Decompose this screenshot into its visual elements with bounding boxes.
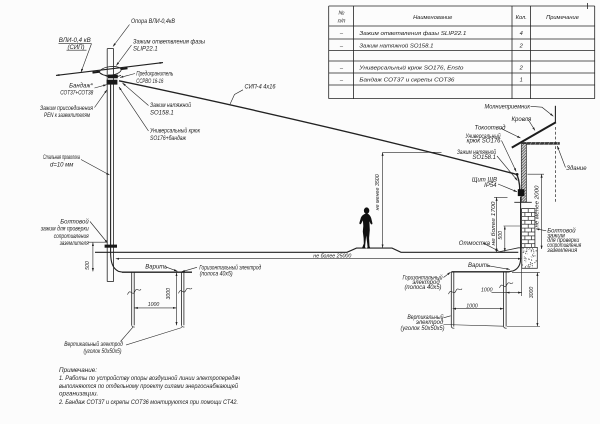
svg-text:(уголок 50х50х5): (уголок 50х50х5) xyxy=(401,326,445,332)
svg-text:–: – xyxy=(339,78,344,84)
svg-text:Зажим присоединения: Зажим присоединения xyxy=(40,106,94,112)
svg-text:СИП-4 4х16: СИП-4 4х16 xyxy=(245,85,277,91)
svg-text:IP54: IP54 xyxy=(484,183,497,189)
svg-text:Наименование: Наименование xyxy=(413,15,452,21)
svg-text:–: – xyxy=(339,66,344,72)
svg-text:Универсальный крюк: Универсальный крюк xyxy=(149,128,201,135)
svg-text:Зажим натяжной SO158.1: Зажим натяжной SO158.1 xyxy=(359,43,433,50)
svg-text:(полоса 40х5): (полоса 40х5) xyxy=(200,272,233,278)
svg-text:Зажим натяжной: Зажим натяжной xyxy=(150,102,192,109)
svg-text:электрод: электрод xyxy=(416,320,444,326)
svg-text:не менее 3500: не менее 3500 xyxy=(375,174,381,210)
svg-text:d=10 мм: d=10 мм xyxy=(50,162,73,168)
svg-text:крюк SO176: крюк SO176 xyxy=(467,139,502,145)
svg-text:ВЛИ-0,4 кВ: ВЛИ-0,4 кВ xyxy=(59,38,91,44)
svg-text:сопротивления: сопротивления xyxy=(54,234,90,240)
svg-text:Стальная проволока: Стальная проволока xyxy=(43,155,80,161)
svg-text:SLIP22.1: SLIP22.1 xyxy=(133,47,158,53)
svg-text:заземлителя: заземлителя xyxy=(59,241,89,247)
svg-text:зажим для проверки: зажим для проверки xyxy=(40,227,89,233)
svg-text:Примечание: Примечание xyxy=(546,15,579,21)
svg-text:SO158.1: SO158.1 xyxy=(472,155,496,161)
svg-text:Здание: Здание xyxy=(566,166,587,172)
svg-text:Кол.: Кол. xyxy=(516,15,527,21)
svg-text:1000: 1000 xyxy=(466,303,478,309)
svg-text:3000: 3000 xyxy=(166,288,172,300)
svg-text:Варить: Варить xyxy=(468,263,490,269)
svg-text:(уголок 50х50х5): (уголок 50х50х5) xyxy=(84,349,122,355)
svg-text:1000: 1000 xyxy=(148,302,160,308)
svg-text:не менее 2000: не менее 2000 xyxy=(535,185,541,227)
svg-text:–: – xyxy=(339,44,344,50)
svg-text:1000: 1000 xyxy=(481,288,493,294)
svg-text:Варить: Варить xyxy=(145,265,167,271)
svg-text:№: № xyxy=(338,11,344,17)
svg-text:Бандаж СОТ37 и скрепы СОТ36: Бандаж СОТ37 и скрепы СОТ36 xyxy=(359,78,455,84)
svg-text:не более 1700: не более 1700 xyxy=(491,201,497,245)
svg-text:Зажим ответвления фазы SLIP22.: Зажим ответвления фазы SLIP22.1 xyxy=(359,31,466,37)
svg-text:(полоса 40х5): (полоса 40х5) xyxy=(405,285,442,291)
svg-text:СОТ37+СОТ38: СОТ37+СОТ38 xyxy=(60,91,94,97)
svg-text:Универсальный крюк SO176, Enst: Универсальный крюк SO176, Ensto xyxy=(358,65,463,72)
svg-text:Предохранитель: Предохранитель xyxy=(136,72,173,78)
svg-text:SO158.1: SO158.1 xyxy=(150,110,174,116)
svg-text:Опора ВЛИ-0,4кВ: Опора ВЛИ-0,4кВ xyxy=(131,19,175,25)
svg-text:Горизонтальный электрод: Горизонтальный электрод xyxy=(199,264,262,271)
svg-text:2: 2 xyxy=(519,66,524,72)
svg-text:Кровля: Кровля xyxy=(512,117,533,123)
svg-text:3000: 3000 xyxy=(529,287,535,299)
svg-text:не более 25000: не более 25000 xyxy=(313,254,352,260)
svg-text:4: 4 xyxy=(520,31,523,37)
svg-text:500: 500 xyxy=(498,231,504,240)
svg-text:Примечание:: Примечание: xyxy=(59,367,97,374)
svg-text:заземления: заземления xyxy=(546,248,578,254)
svg-text:Отмостка: Отмостка xyxy=(459,241,491,247)
svg-text:1: 1 xyxy=(520,78,523,84)
svg-text:PEN к заземлителям: PEN к заземлителям xyxy=(44,113,90,119)
svg-text:Бандаж*: Бандаж* xyxy=(69,84,93,90)
svg-text:1. Работы по устройству опоры: 1. Работы по устройству опоры воздушной … xyxy=(59,374,241,382)
svg-text:ССРВО 16-16: ССРВО 16-16 xyxy=(136,79,163,85)
svg-text:Молниеприемник: Молниеприемник xyxy=(485,105,532,111)
svg-text:–: – xyxy=(339,31,344,37)
svg-text:п/п: п/п xyxy=(338,19,347,25)
svg-text:SO176+бандаж: SO176+бандаж xyxy=(150,136,187,142)
svg-text:Болтовой: Болтовой xyxy=(60,218,89,225)
svg-text:500: 500 xyxy=(85,261,91,270)
svg-text:выполняются по отдельному прое: выполняются по отдельному проекту силами… xyxy=(59,382,238,390)
svg-text:Зажим ответвления фазы: Зажим ответвления фазы xyxy=(133,40,206,46)
svg-text:2. Бандаж СОТ37 и скрепы СОТ36: 2. Бандаж СОТ37 и скрепы СОТ36 монтируют… xyxy=(58,398,238,406)
svg-text:Вертикальный электрод: Вертикальный электрод xyxy=(64,341,123,348)
svg-text:организации.: организации. xyxy=(59,390,98,397)
svg-text:2: 2 xyxy=(519,44,524,50)
